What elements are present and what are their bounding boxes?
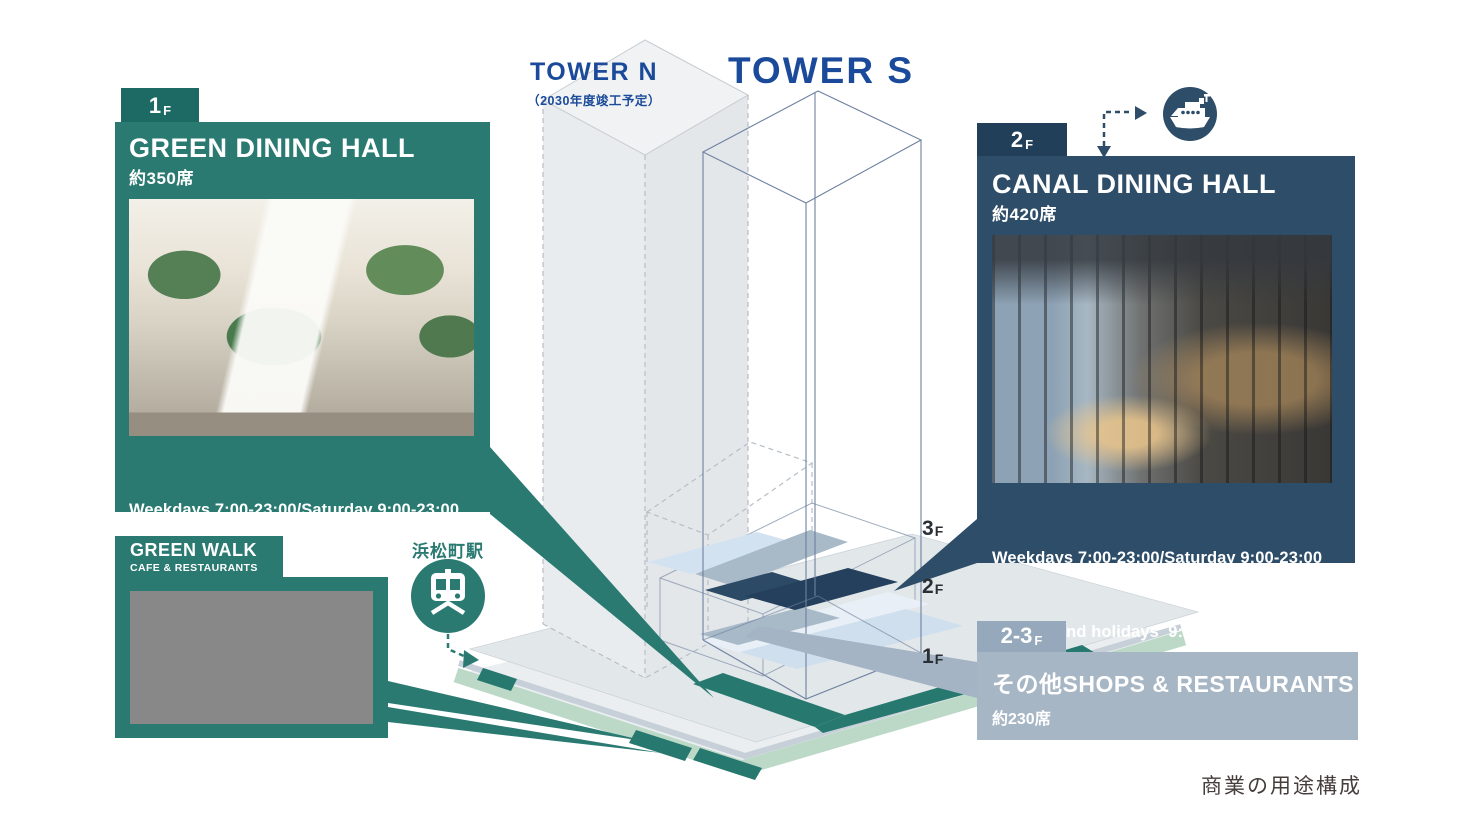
floor-marker-1f: 1F: [922, 646, 943, 667]
floor-number: 1: [922, 646, 934, 667]
diagram-caption: 商業の用途構成: [1140, 770, 1362, 800]
floor-suffix: F: [1034, 634, 1042, 647]
canal-dining-floor-tab: 2F: [977, 123, 1067, 156]
tower-n-subtitle: （2030年度竣工予定）: [505, 90, 683, 109]
canal-dining-seats: 約420席: [992, 200, 1340, 225]
floor-suffix: F: [935, 652, 944, 667]
floor-number: 1: [149, 95, 161, 117]
green-walk-title: GREEN WALK: [130, 541, 283, 561]
floor-suffix: F: [1025, 138, 1033, 151]
floor-marker-3f: 3F: [922, 518, 943, 539]
floor-number: 2: [922, 576, 934, 597]
floor-number: 3: [922, 518, 934, 539]
pier-arrow: [1097, 106, 1147, 158]
hours-line-1: Weekdays 7:00-23:00/Saturday 9:00-23:00: [992, 546, 1340, 571]
station-label: 浜松町駅: [402, 537, 494, 562]
green-dining-title: GREEN DINING HALL: [129, 134, 476, 164]
green-dining-photo: [129, 199, 474, 436]
shops-floor-tab: 2-3F: [977, 621, 1066, 652]
floor-number: 2-3: [1001, 625, 1033, 647]
infographic-canvas: TOWER N （2030年度竣工予定） TOWER S 1F GREEN DI…: [0, 0, 1460, 820]
green-walk-photo: [130, 591, 373, 724]
canal-dining-photo: [992, 235, 1332, 483]
floor-marker-2f: 2F: [922, 576, 943, 597]
floor-suffix: F: [163, 104, 171, 117]
tower-n-title: TOWER N: [505, 58, 683, 87]
canal-dining-title: CANAL DINING HALL: [992, 170, 1340, 200]
floor-number: 2: [1011, 129, 1023, 151]
green-walk-header: GREEN WALK CAFE & RESTAURANTS: [115, 536, 283, 577]
ferry-ship-icon: [1163, 87, 1217, 141]
shops-title: その他SHOPS & RESTAURANTS: [992, 665, 1358, 699]
green-dining-panel: GREEN DINING HALL 約350席 Weekdays 7:00-23…: [115, 122, 490, 512]
tower-n-label: TOWER N （2030年度竣工予定）: [505, 58, 683, 109]
shops-seats: 約230席: [992, 705, 1358, 729]
green-walk-subtitle: CAFE & RESTAURANTS: [130, 562, 283, 574]
green-dining-floor-tab: 1F: [121, 88, 199, 122]
canal-dining-panel: CANAL DINING HALL 約420席 Weekdays 7:00-23…: [977, 156, 1355, 563]
green-dining-seats: 約350席: [129, 164, 476, 189]
floor-suffix: F: [935, 524, 944, 539]
tower-s-label: TOWER S: [728, 50, 914, 92]
shops-panel: その他SHOPS & RESTAURANTS 約230席: [977, 652, 1358, 740]
floor-suffix: F: [935, 582, 944, 597]
green-walk-panel: [115, 577, 388, 738]
hours-line-1: Weekdays 7:00-23:00/Saturday 9:00-23:00: [129, 498, 476, 523]
